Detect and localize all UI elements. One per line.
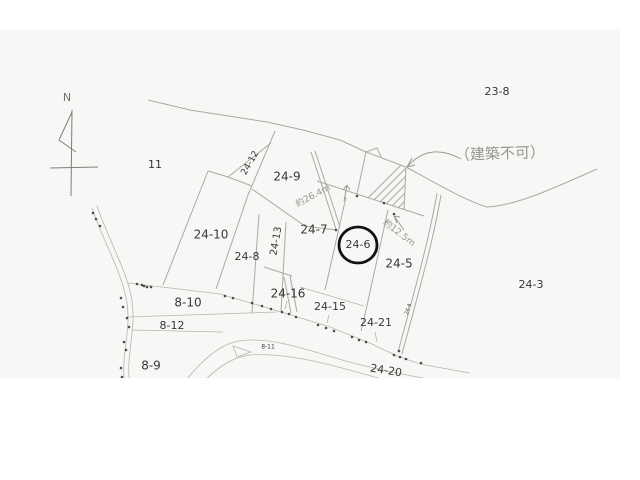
boundary-dot	[393, 354, 396, 357]
parcel-label-24-16: 24-16	[271, 287, 306, 301]
parcel-label-8-11: 8-11	[261, 344, 275, 351]
boundary-dot	[383, 202, 386, 205]
parcel-label-24-15: 24-15	[314, 300, 346, 313]
boundary-dot	[398, 350, 401, 353]
page-margin-right	[620, 0, 640, 480]
boundary-dot	[99, 225, 102, 228]
parcel-label-24-7: 24-7	[300, 223, 327, 237]
boundary-dot	[335, 229, 338, 232]
boundary-dot	[123, 341, 126, 344]
parcel-label-8-9: 8-9	[141, 359, 161, 373]
boundary-dot	[232, 297, 235, 300]
boundary-dot	[295, 316, 298, 319]
boundary-dot	[333, 330, 336, 333]
boundary-dot	[351, 336, 354, 339]
parcel-label-24-21: 24-21	[360, 316, 392, 329]
page-margin-bottom	[0, 378, 640, 480]
boundary-dot	[251, 302, 254, 305]
parcel-label-24-3: 24-3	[519, 278, 544, 291]
parcel-label-24-5: 24-5	[385, 257, 412, 271]
boundary-dot	[325, 327, 328, 330]
boundary-dot	[128, 326, 131, 329]
boundary-dot	[270, 308, 273, 311]
parcel-label-24-8: 24-8	[235, 250, 260, 263]
parcel-label-11: 11	[148, 158, 162, 171]
boundary-dot	[95, 218, 98, 221]
boundary-dot	[358, 339, 361, 342]
boundary-dot	[121, 376, 124, 379]
page-margin-top	[0, 0, 640, 30]
handwritten-annotation: （建築不可）	[455, 143, 546, 164]
boundary-dot	[288, 313, 291, 316]
boundary-dot	[393, 213, 396, 216]
boundary-dot	[125, 349, 128, 352]
boundary-dot	[281, 311, 284, 314]
cadastral-map: N 1123-824-1224-924-1024-1324-824-724-62…	[0, 0, 640, 480]
cadastral-map-svg: N 1123-824-1224-924-1024-1324-824-724-62…	[0, 0, 640, 480]
scan-area	[0, 30, 620, 378]
parcel-label-24-6: 24-6	[346, 238, 371, 251]
boundary-dot	[120, 367, 123, 370]
parcel-label-24-10: 24-10	[194, 228, 229, 242]
boundary-dot	[261, 305, 264, 308]
boundary-dot	[141, 284, 144, 287]
boundary-dot	[224, 295, 227, 298]
boundary-dot	[356, 195, 359, 198]
boundary-dot	[405, 358, 408, 361]
parcel-label-8-10: 8-10	[174, 296, 201, 310]
boundary-dot	[120, 297, 123, 300]
boundary-dot	[136, 283, 139, 286]
boundary-dot	[150, 286, 153, 289]
boundary-dot	[317, 324, 320, 327]
boundary-dot	[92, 212, 95, 215]
boundary-dot	[146, 286, 149, 289]
parcel-label-8-12: 8-12	[160, 319, 185, 332]
boundary-dot	[126, 317, 129, 320]
boundary-dot	[365, 341, 368, 344]
north-label: N	[63, 91, 71, 104]
parcel-label-24-9: 24-9	[273, 170, 300, 184]
boundary-dot	[399, 356, 402, 359]
boundary-dot	[122, 306, 125, 309]
parcel-label-23-8: 23-8	[485, 85, 510, 98]
boundary-dot	[420, 362, 423, 365]
